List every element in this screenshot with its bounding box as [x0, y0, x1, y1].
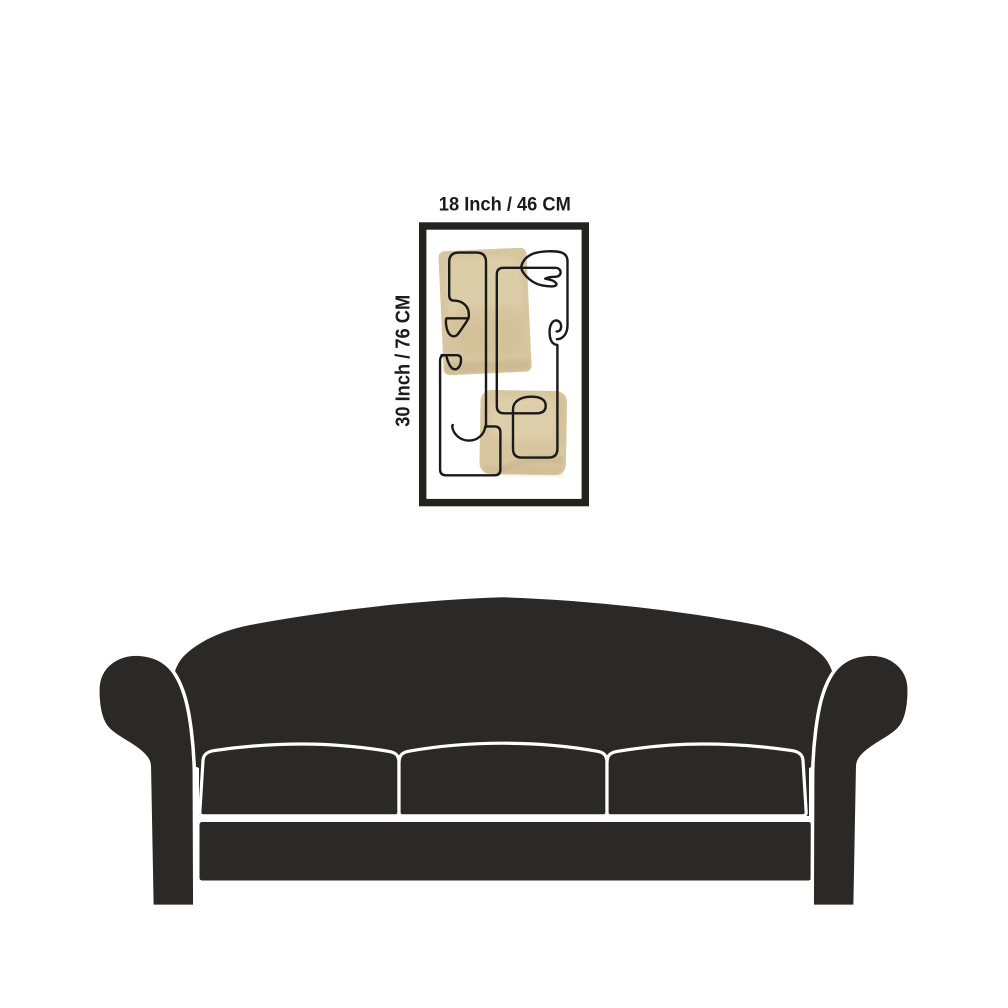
svg-text:18 Inch / 46 CM: 18 Inch / 46 CM	[439, 194, 571, 216]
svg-text:30 Inch / 76 CM: 30 Inch / 76 CM	[393, 295, 415, 427]
